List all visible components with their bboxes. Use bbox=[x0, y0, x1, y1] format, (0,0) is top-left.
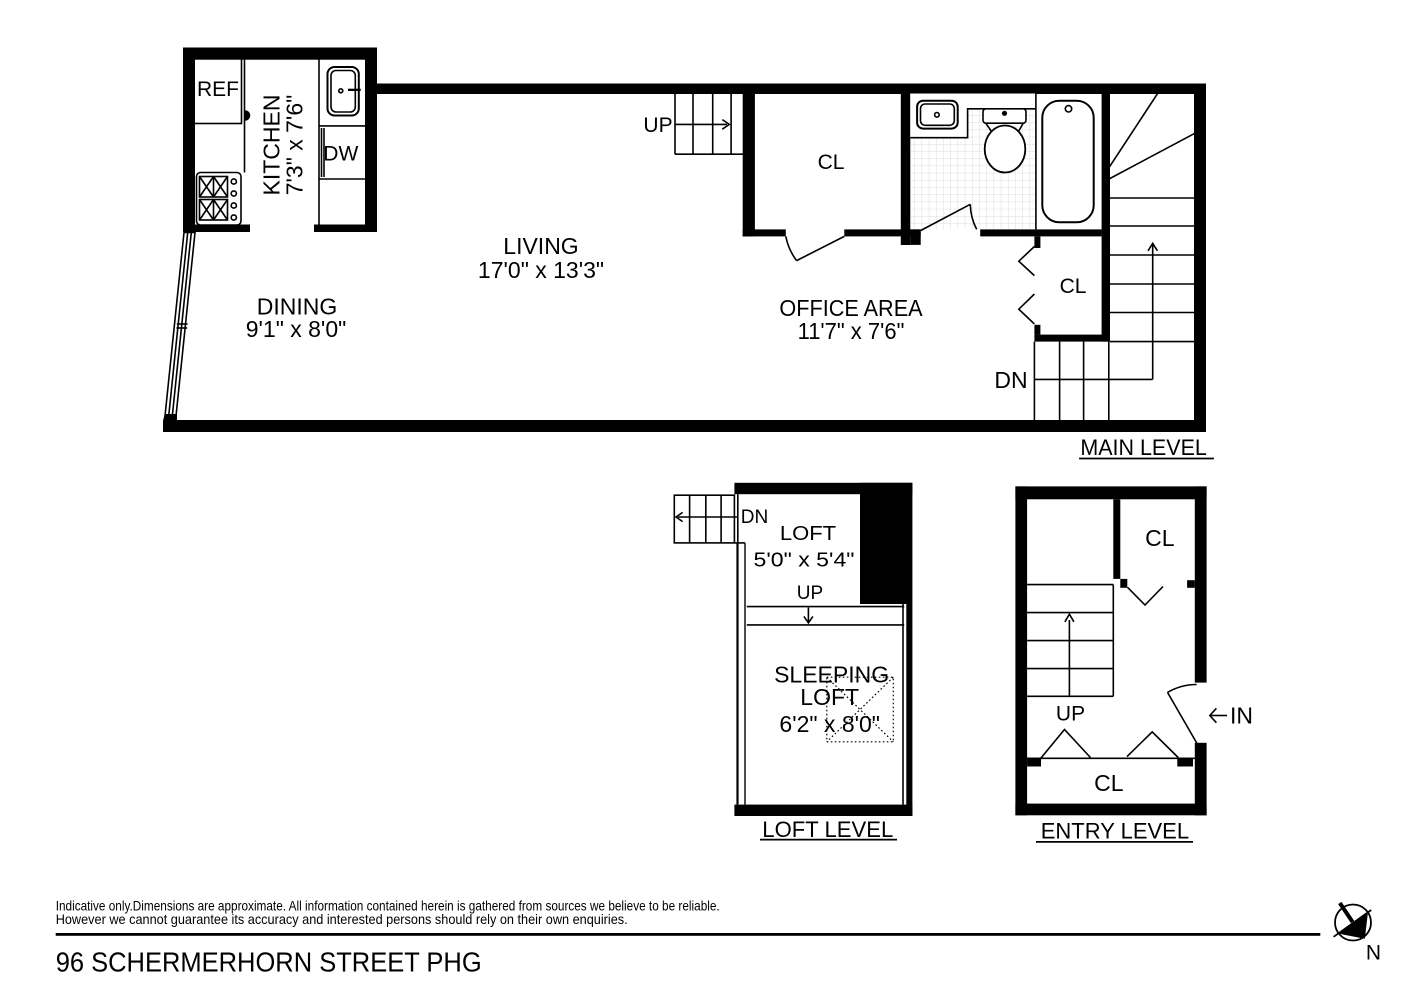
svg-text:96 SCHERMERHORN STREET PHG: 96 SCHERMERHORN STREET PHG bbox=[56, 947, 482, 978]
svg-text:UP: UP bbox=[1056, 702, 1085, 725]
svg-text:LIVING: LIVING bbox=[503, 233, 578, 259]
svg-text:CL: CL bbox=[1145, 525, 1175, 551]
svg-text:LOFT: LOFT bbox=[800, 684, 859, 710]
svg-text:CL: CL bbox=[1094, 770, 1124, 796]
svg-text:11'7" x 7'6": 11'7" x 7'6" bbox=[798, 318, 905, 344]
svg-text:ENTRY LEVEL: ENTRY LEVEL bbox=[1041, 819, 1189, 844]
svg-text:6'2" x 8'0": 6'2" x 8'0" bbox=[779, 711, 880, 737]
svg-text:UP: UP bbox=[643, 114, 672, 137]
svg-text:CL: CL bbox=[818, 151, 845, 174]
svg-text:MAIN LEVEL: MAIN LEVEL bbox=[1080, 435, 1207, 460]
svg-text:However we cannot guarantee it: However we cannot guarantee its accuracy… bbox=[56, 911, 628, 927]
svg-text:9'1" x 8'0": 9'1" x 8'0" bbox=[246, 316, 347, 342]
svg-text:KITCHEN7'3" x 7'6": KITCHEN7'3" x 7'6" bbox=[259, 95, 308, 196]
svg-text:IN: IN bbox=[1230, 703, 1253, 729]
svg-text:LOFT LEVEL: LOFT LEVEL bbox=[762, 817, 893, 842]
svg-text:5'0" x 5'4": 5'0" x 5'4" bbox=[754, 550, 855, 572]
svg-text:DN: DN bbox=[994, 367, 1027, 393]
svg-text:DW: DW bbox=[323, 143, 358, 166]
svg-text:UP: UP bbox=[797, 583, 823, 604]
svg-text:CL: CL bbox=[1060, 275, 1087, 298]
svg-text:REF: REF bbox=[197, 78, 239, 101]
svg-text:LOFT: LOFT bbox=[780, 523, 836, 545]
svg-text:DN: DN bbox=[741, 507, 768, 528]
svg-text:17'0" x 13'3": 17'0" x 13'3" bbox=[478, 257, 604, 283]
svg-text:N: N bbox=[1366, 942, 1381, 965]
